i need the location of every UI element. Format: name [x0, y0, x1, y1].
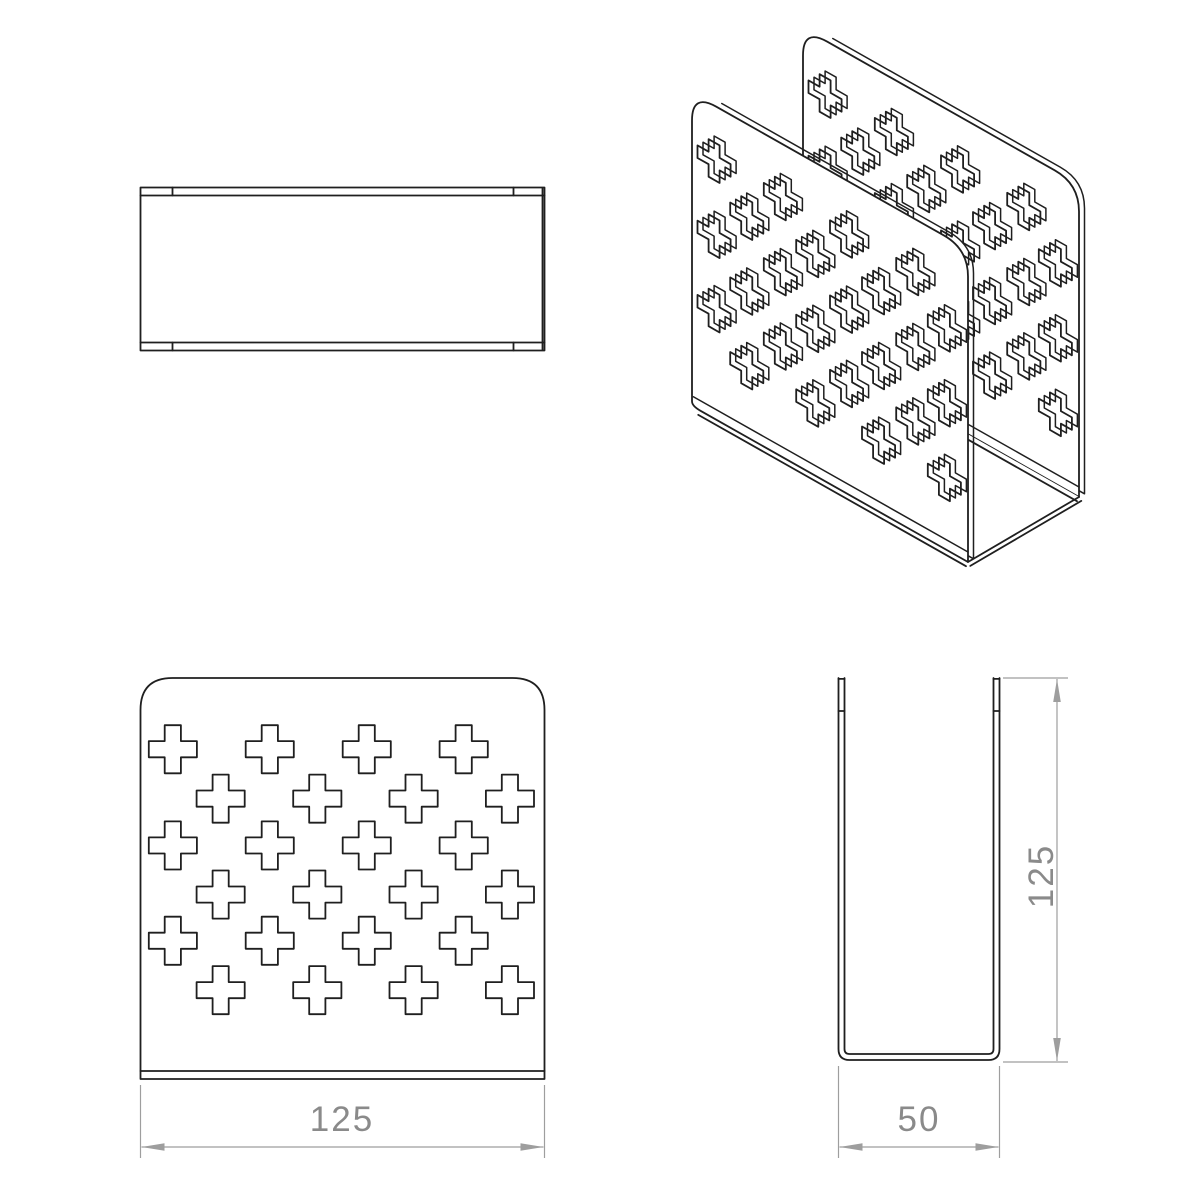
top-view-outline	[141, 188, 545, 351]
dimension-arrow	[142, 1143, 165, 1151]
front-width-dimension-label: 125	[140, 1100, 544, 1140]
isometric-view	[692, 37, 1085, 566]
top-view	[141, 188, 545, 351]
side-depth-dimension-label: 50	[838, 1100, 1000, 1140]
front-panel-outline	[141, 678, 545, 1079]
dimension-arrow	[1053, 679, 1061, 702]
side-profile-outer	[839, 678, 1000, 1060]
side-profile-inner	[845, 678, 994, 1054]
drawing-canvas: 125 50 125	[0, 0, 1200, 1200]
dimension-arrow	[1053, 1038, 1061, 1061]
dimension-arrow	[521, 1143, 544, 1151]
dimension-arrow	[976, 1143, 999, 1151]
dimension-arrow	[840, 1143, 863, 1151]
side-height-dimension-label: 125	[1022, 796, 1062, 956]
front-view	[141, 678, 545, 1158]
technical-drawing-svg	[0, 0, 1200, 1200]
